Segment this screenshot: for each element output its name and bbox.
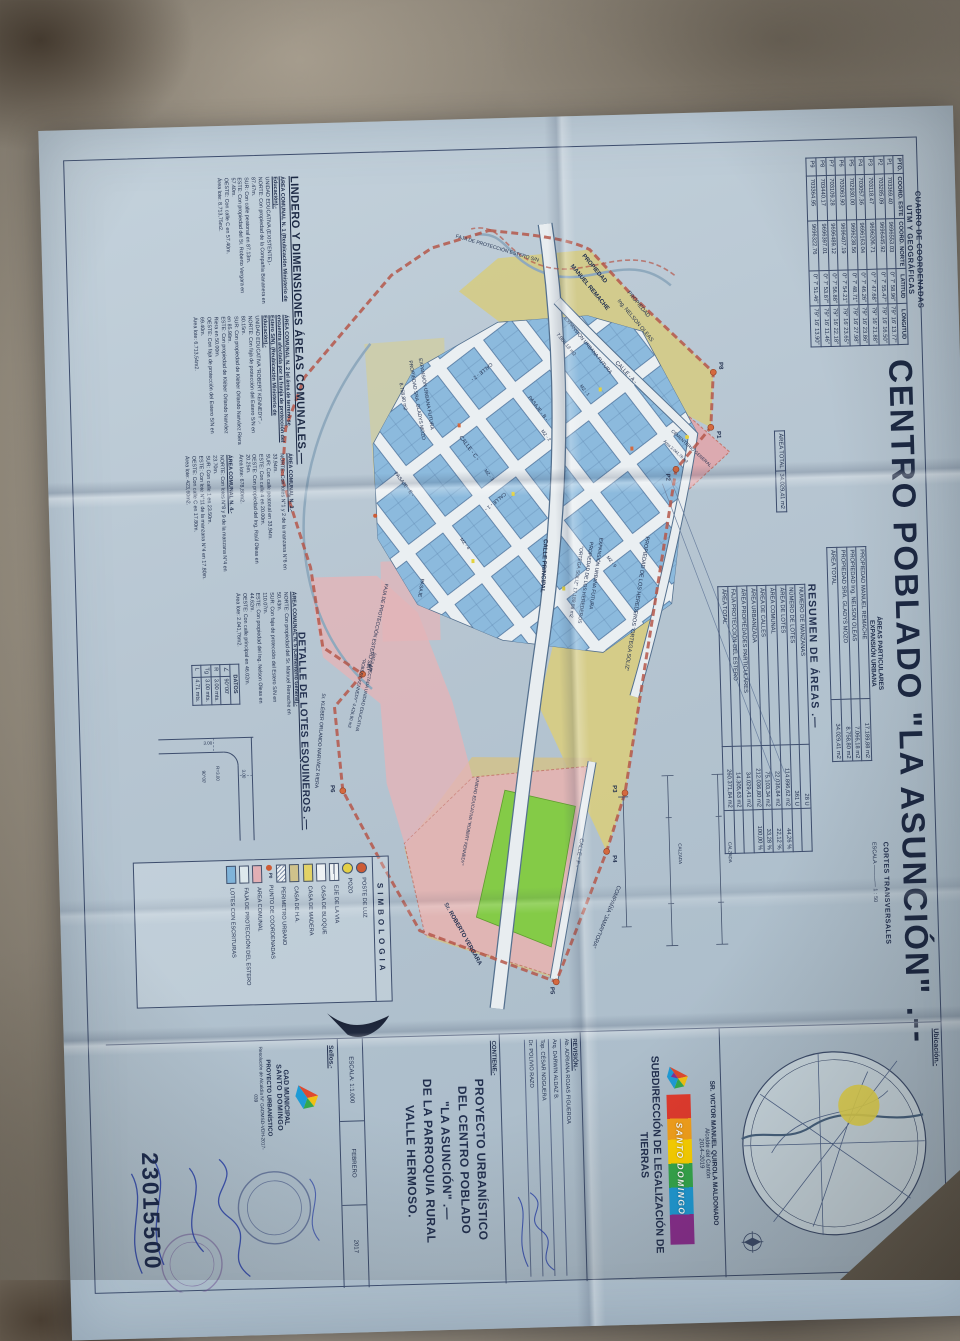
datos-table-block: DATOS ∠90°00'R3.00 mts.Tg3.00 mts.L4.71 … <box>191 664 240 706</box>
simbologia-legend: SIMBOLOGIA POSTE DE LUZ POZO EJE DE LA V… <box>133 856 393 1009</box>
legend-swatch-icon <box>356 862 367 873</box>
revision-signatures-ink <box>510 1186 572 1278</box>
area-comunal-entry: ÁREA COMUNAL N. 2 (el área de terreno se… <box>191 315 292 447</box>
date-month: FEBRERO <box>340 1122 366 1206</box>
legend-swatch-icon <box>225 866 235 884</box>
point-label-p8: P8 <box>717 362 723 370</box>
revision-section: REVISIÓN.- Ab. ADRIANA ROJAS FIGUEROAArq… <box>499 1032 587 1283</box>
title-block: Ubicación.- SR. VICTOR MANUEL QUIROLA MA… <box>106 1021 949 1294</box>
map-sheet-paper: P1 P2 P3 P4 P5 P6 P7 P8 CALLE - A - PASA… <box>38 105 960 1340</box>
area-comunal-entry: ÁREA COMUNAL N. 5 (Cementerio General).-… <box>233 591 300 722</box>
corner-diagram-dim1: 3.00 <box>241 769 246 778</box>
table-row: ∠90°00' <box>220 664 231 704</box>
legend-swatch-icon <box>289 864 299 882</box>
corner-diagram-dim2: 3.00 <box>203 740 212 745</box>
area-total-value: 34.029,41 m2 <box>776 471 787 512</box>
map-label-kleber: Sr. KLÉBER ORLANDO NARVÁEZ RIERA <box>313 693 327 789</box>
location-inset-map <box>724 1030 943 1272</box>
point-label-p4: P4 <box>611 855 617 863</box>
point-label-p5: P5 <box>548 987 554 995</box>
santo-domingo-bird-icon <box>666 1064 691 1091</box>
gad-resolution: Resolución de Alcaldía N° GADMSD-VDH-201… <box>249 1045 264 1151</box>
scale-value: ESCALA: 1:1.000 <box>338 1038 364 1122</box>
resumen-table: NÚMERO DE MANZANAS28 U NÚMERO DE LOTES36… <box>717 584 812 854</box>
corner-diagram-angle: 90°00' <box>201 771 206 784</box>
resumen-areas-block: RESUMEN DE ÁREAS .— NÚMERO DE MANZANAS28… <box>717 583 824 854</box>
cross-sections <box>618 774 729 947</box>
coordinates-table-block: CUADRO DE COORDENADAS UTM Y GEOGRÁFICAS … <box>806 154 927 347</box>
corner-diagram-radius: R=3.00 <box>215 766 220 781</box>
contiene-section: CONTIENE.- PROYECTO URBANÍSTICO DEL CENT… <box>362 1035 506 1288</box>
datos-title: DATOS <box>229 664 240 704</box>
project-title: PROYECTO URBANÍSTICO DEL CENTRO POBLADO … <box>399 1035 493 1286</box>
legend-swatch-icon <box>239 865 249 883</box>
point-label-p2: P2 <box>664 474 670 482</box>
legend-swatch-icon <box>316 863 326 881</box>
gad-municipal-block: GAD MUNICIPAL SANTO DOMINGO PROYECTO URB… <box>249 1044 321 1152</box>
table-row: R3.00 mts. <box>210 665 221 705</box>
area-total-label: ÁREA TOTAL <box>775 431 786 471</box>
lindero-block: LINDERO Y DIMENSIONES ÁREAS COMUNALES.— … <box>82 176 315 727</box>
corner-lot-diagram <box>158 737 256 843</box>
legend-swatch-icon: P0 <box>265 865 273 881</box>
santo-domingo-logo: SANTO DOMINGO <box>666 1094 694 1245</box>
areas-particulares-block: ÁREAS PARTICULARES EXPANSIÓN URBANA PROP… <box>827 546 887 762</box>
ubicacion-section: Ubicación.- <box>719 1022 949 1277</box>
compass-icon <box>741 1231 763 1253</box>
table-row: Tg3.00 mts. <box>201 665 212 705</box>
table-row: ÁREA TOTAL 34.029,41 m2 <box>775 431 787 512</box>
map-label-jamaytora: COMPAÑÍA "JAMAYTORA" <box>590 884 622 949</box>
gad-bird-icon <box>294 1082 321 1113</box>
area-comunal-entry: ÁREA COMUNAL N. 1 (Reubicación Ministeri… <box>215 176 289 307</box>
legend-swatch-icon <box>252 865 262 883</box>
film-number: 23015500 <box>136 1152 166 1271</box>
table-row: L4.71 mts. <box>192 665 203 705</box>
legend-swatch-icon <box>342 863 353 874</box>
legend-swatch-icon <box>329 863 339 881</box>
subdireccion-title: SUBDIRECCIÓN DE LEGALIZACIÓN DE TIERRAS <box>633 1030 666 1280</box>
cross-section-label-2: CALZADA <box>677 843 683 864</box>
sellos-section: Sellos.- GAD MUNICIPAL SANTO DOMINGO PRO… <box>107 1039 344 1294</box>
coordinates-table: PTO.COORD. ESTECOORD. NORTELATITUDLONGIT… <box>806 155 909 348</box>
areas-particulares-table: PROPIEDAD MANUEL REMACHE17.189,88 m2PROP… <box>827 546 873 762</box>
area-total-box: ÁREA TOTAL 34.029,41 m2 <box>774 430 787 512</box>
legend-swatch-icon <box>303 864 313 882</box>
north-arrow-icon <box>327 1012 390 1038</box>
authority-section: SR. VICTOR MANUEL QUIROLA MALDONADO Alca… <box>580 1028 726 1281</box>
simbologia-title: SIMBOLOGIA <box>372 857 388 1001</box>
point-label-p1: P1 <box>715 431 721 439</box>
area-comunal-entry: ÁREA COMUNAL N. 3.- NORTE: Con lotes N°1… <box>236 453 296 584</box>
legend-swatch-icon <box>276 864 286 882</box>
photo-background: P1 P2 P3 P4 P5 P6 P7 P8 CALLE - A - PASA… <box>0 0 960 1280</box>
point-label-p6: P6 <box>329 785 335 793</box>
gad-line3: PROYECTO URBANÍSTICO <box>264 1045 273 1151</box>
area-comunal-entry: ÁREA COMUNAL N. 4.- NORTE: Con lotes N°8… <box>183 455 236 586</box>
date-year: 2017 <box>342 1205 368 1288</box>
point-label-p3: P3 <box>611 785 617 793</box>
datos-table: DATOS ∠90°00'R3.00 mts.Tg3.00 mts.L4.71 … <box>191 664 240 706</box>
plan-sheet: P1 P2 P3 P4 P5 P6 P7 P8 CALLE - A - PASA… <box>55 128 957 1302</box>
